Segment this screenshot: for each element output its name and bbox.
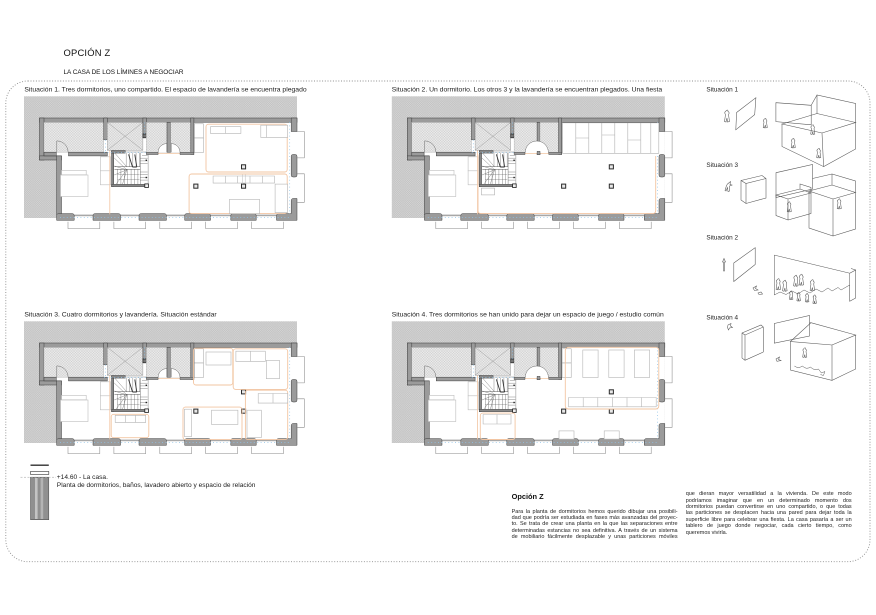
svg-text:Situación 4. Tres dormitorios: Situación 4. Tres dormitorios se han uni…: [392, 311, 664, 318]
svg-text:Situación 2. Un dormitorio. Lo: Situación 2. Un dormitorio. Los otros 3 …: [392, 86, 663, 93]
svg-text:Situación 1. Tres dormitorios,: Situación 1. Tres dormitorios, uno compa…: [24, 86, 306, 93]
svg-text:Situación 2: Situación 2: [706, 235, 738, 242]
svg-text:+14.60 - La casa.: +14.60 - La casa.: [57, 474, 108, 481]
svg-text:Situación 4: Situación 4: [706, 315, 738, 322]
svg-text:LA CASA DE LOS LÍMINES A NEGOC: LA CASA DE LOS LÍMINES A NEGOCIAR: [64, 67, 184, 76]
svg-text:Situación 1: Situación 1: [706, 87, 738, 94]
svg-text:Planta de dormitorios, baños,: Planta de dormitorios, baños, lavadero a…: [57, 482, 256, 489]
svg-text:Situación 3: Situación 3: [706, 162, 738, 169]
svg-text:OPCIÓN Z: OPCIÓN Z: [64, 47, 111, 58]
svg-text:Situación 3. Cuatro dormitorio: Situación 3. Cuatro dormitorios y lavand…: [24, 311, 217, 318]
